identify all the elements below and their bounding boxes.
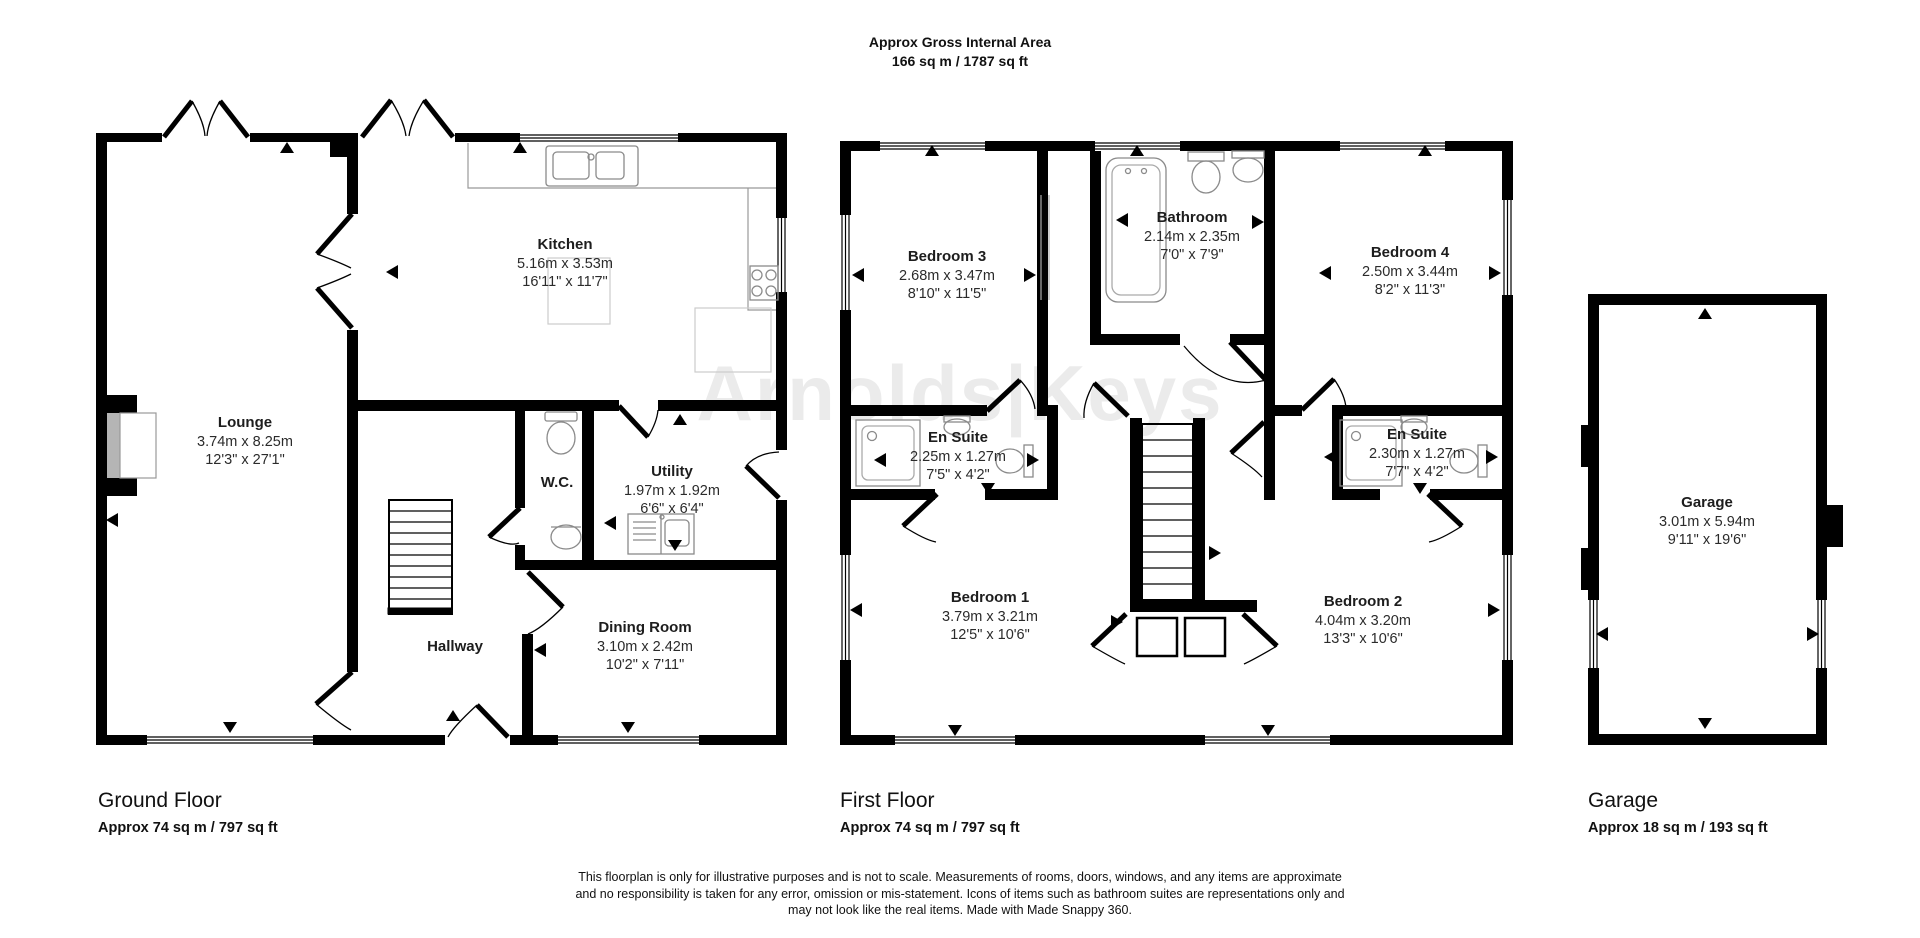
kitchen-sink-icon (546, 146, 638, 186)
room-label-wc: W.C. (541, 474, 574, 493)
toilet-icon (545, 412, 577, 421)
first-staircase-icon (1137, 424, 1225, 656)
kitchen-icons (468, 143, 778, 372)
room-label-ensuite2: En Suite 2.30m x 1.27m 7'7" x 4'2" (1369, 426, 1465, 482)
room-label-hallway: Hallway (427, 638, 483, 657)
toilet-icon (1478, 445, 1487, 477)
room-label-kitchen: Kitchen 5.16m x 3.53m 16'11" x 11'7" (517, 236, 613, 292)
room-label-garage: Garage 3.01m x 5.94m 9'11" x 19'6" (1659, 494, 1755, 550)
room-label-bedroom4: Bedroom 4 2.50m x 3.44m 8'2" x 11'3" (1362, 244, 1458, 300)
disclaimer-text: This floorplan is only for illustrative … (0, 869, 1920, 919)
room-label-bathroom: Bathroom 2.14m x 2.35m 7'0" x 7'9" (1144, 209, 1240, 265)
floor-caption-first: First Floor Approx 74 sq m / 797 sq ft (840, 789, 1020, 836)
room-label-bedroom2: Bedroom 2 4.04m x 3.20m 13'3" x 10'6" (1315, 593, 1411, 649)
room-label-bedroom1: Bedroom 1 3.79m x 3.21m 12'5" x 10'6" (942, 589, 1038, 645)
floorplan-page: Arnolds|Keys (0, 0, 1920, 938)
room-label-lounge: Lounge 3.74m x 8.25m 12'3" x 27'1" (197, 414, 293, 470)
wardrobe-icon (1137, 618, 1177, 656)
fireplace-icon (104, 395, 156, 496)
utility-sink-icon (628, 514, 694, 554)
kitchen-table-icon (695, 308, 771, 372)
gross-internal-area-header: Approx Gross Internal Area 166 sq m / 17… (0, 33, 1920, 71)
floor-caption-ground: Ground Floor Approx 74 sq m / 797 sq ft (98, 789, 278, 836)
basin-icon (1232, 151, 1264, 158)
room-label-bedroom3: Bedroom 3 2.68m x 3.47m 8'10" x 11'5" (899, 248, 995, 304)
garage-windows (1590, 600, 1825, 668)
basin-icon (551, 525, 581, 549)
wardrobe-icon (1185, 618, 1225, 656)
header-title: Approx Gross Internal Area (0, 33, 1920, 52)
staircase-icon (388, 500, 452, 614)
room-label-ensuite1: En Suite 2.25m x 1.27m 7'5" x 4'2" (910, 429, 1006, 485)
hob-icon (750, 266, 778, 300)
room-label-dining: Dining Room 3.10m x 2.42m 10'2" x 7'11" (597, 619, 693, 675)
floor-caption-garage: Garage Approx 18 sq m / 193 sq ft (1588, 789, 1768, 836)
header-area: 166 sq m / 1787 sq ft (0, 52, 1920, 71)
room-label-utility: Utility 1.97m x 1.92m 6'6" x 6'4" (624, 463, 720, 519)
toilet-icon (1188, 152, 1224, 161)
